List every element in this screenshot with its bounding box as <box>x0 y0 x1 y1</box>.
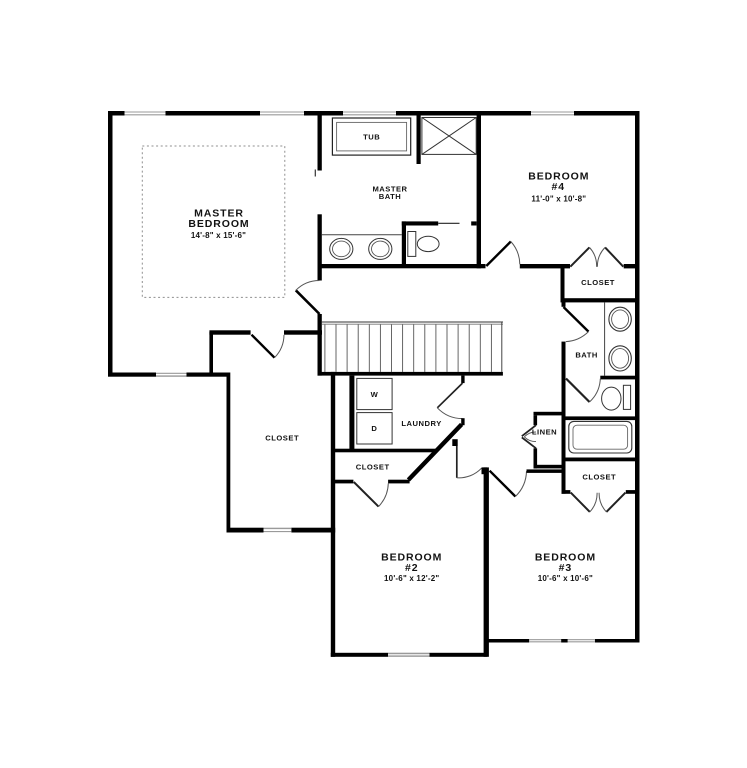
svg-text:CLOSET: CLOSET <box>265 434 299 443</box>
svg-text:LAUNDRY: LAUNDRY <box>401 419 441 428</box>
svg-text:10'-6" x 10'-6": 10'-6" x 10'-6" <box>538 574 593 583</box>
svg-text:BEDROOM: BEDROOM <box>188 218 249 230</box>
svg-text:#3: #3 <box>559 562 572 574</box>
svg-text:BATH: BATH <box>379 192 402 201</box>
svg-text:10'-6" x 12'-2": 10'-6" x 12'-2" <box>384 574 439 583</box>
svg-text:CLOSET: CLOSET <box>581 278 615 287</box>
svg-text:CLOSET: CLOSET <box>356 463 390 472</box>
svg-text:BATH: BATH <box>575 351 598 360</box>
svg-text:W: W <box>371 390 379 399</box>
svg-text:#4: #4 <box>552 181 565 193</box>
svg-text:D: D <box>371 424 377 433</box>
svg-text:CLOSET: CLOSET <box>582 473 616 482</box>
svg-text:11'-0" x 10'-8": 11'-0" x 10'-8" <box>531 194 586 203</box>
svg-text:TUB: TUB <box>363 133 380 142</box>
svg-text:#2: #2 <box>405 562 418 574</box>
svg-text:LINEN: LINEN <box>532 428 557 437</box>
svg-text:14'-8" x 15'-6": 14'-8" x 15'-6" <box>191 231 246 240</box>
